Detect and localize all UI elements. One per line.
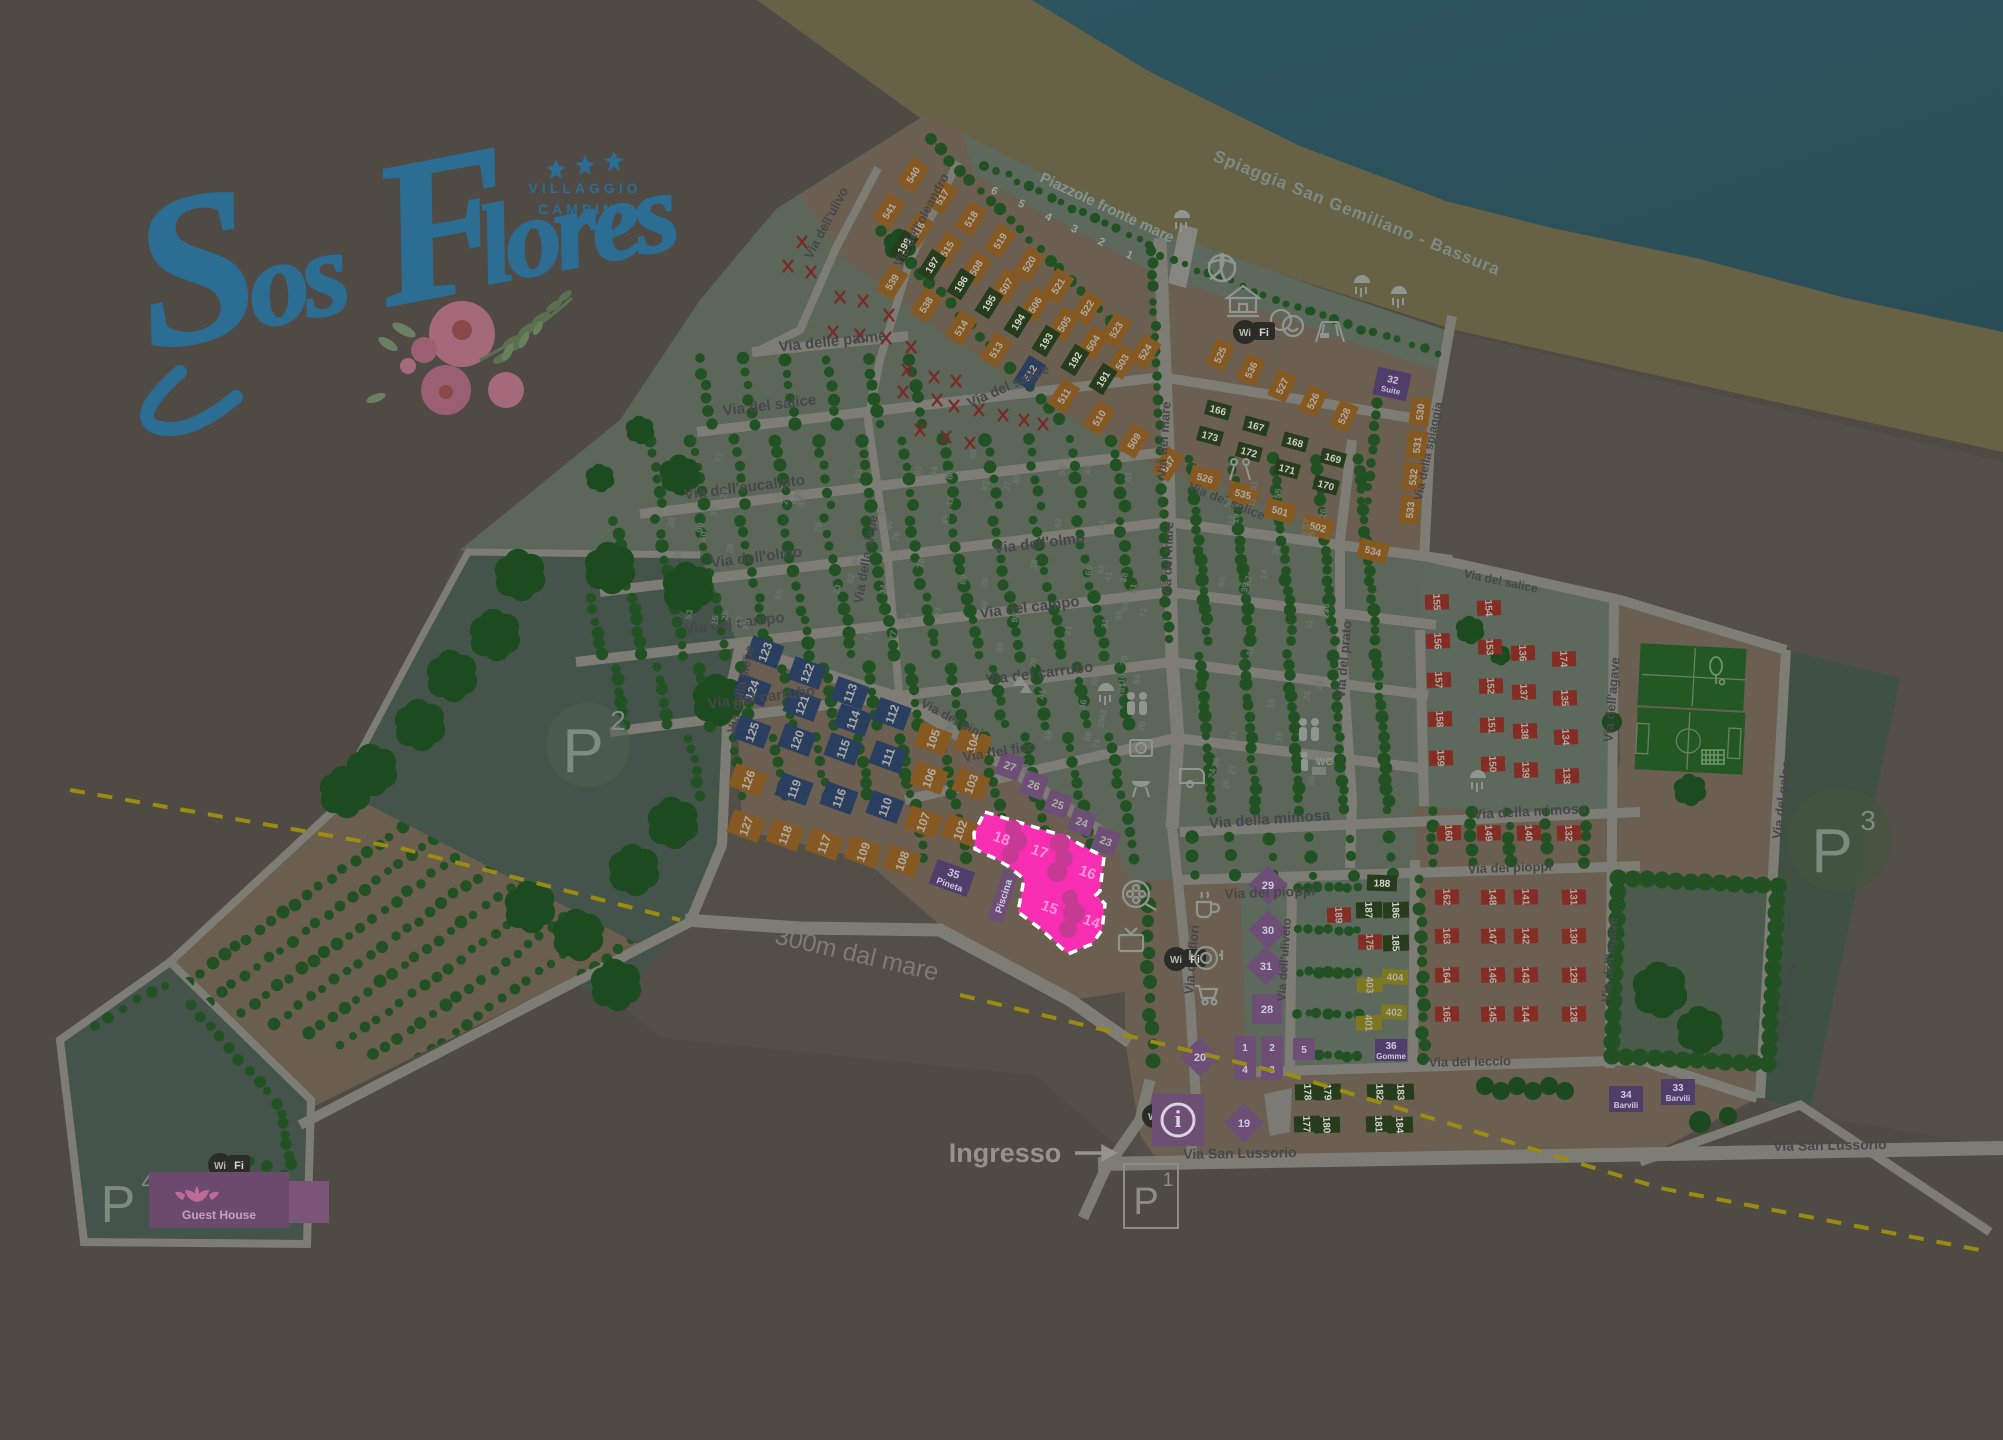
svg-text:79: 79 xyxy=(812,522,824,534)
svg-text:31: 31 xyxy=(1062,625,1074,637)
svg-text:Via San Lussorio: Via San Lussorio xyxy=(1773,1136,1887,1154)
svg-text:25: 25 xyxy=(719,610,731,622)
svg-text:27: 27 xyxy=(1001,480,1013,492)
svg-text:31: 31 xyxy=(1099,618,1111,630)
svg-text:1: 1 xyxy=(1242,1043,1248,1054)
svg-text:33: 33 xyxy=(1672,1083,1684,1094)
svg-text:160: 160 xyxy=(1442,825,1454,842)
svg-text:71: 71 xyxy=(1137,607,1149,619)
svg-text:146: 146 xyxy=(1486,967,1498,984)
svg-text:53: 53 xyxy=(683,609,695,621)
svg-text:Ingresso: Ingresso xyxy=(949,1138,1062,1168)
svg-text:i: i xyxy=(1175,1107,1182,1133)
svg-text:188: 188 xyxy=(1373,878,1390,890)
svg-text:530: 530 xyxy=(1415,403,1428,421)
svg-text:143: 143 xyxy=(1519,967,1531,984)
svg-text:69: 69 xyxy=(1083,565,1095,577)
svg-text:38: 38 xyxy=(1028,559,1040,571)
svg-text:14: 14 xyxy=(1258,569,1270,581)
svg-text:85: 85 xyxy=(967,448,979,460)
svg-text:133: 133 xyxy=(1560,768,1572,785)
svg-text:80: 80 xyxy=(957,574,969,586)
svg-text:180: 180 xyxy=(1320,1117,1332,1134)
svg-text:Via del leccio: Via del leccio xyxy=(1429,1053,1511,1069)
svg-text:533: 533 xyxy=(1405,501,1418,519)
svg-text:Wi: Wi xyxy=(1170,955,1182,966)
svg-text:156: 156 xyxy=(1431,633,1443,650)
svg-text:41: 41 xyxy=(1036,689,1048,701)
svg-text:151: 151 xyxy=(1485,717,1497,734)
svg-text:165: 165 xyxy=(1440,1006,1452,1023)
svg-text:59: 59 xyxy=(978,600,990,612)
svg-text:2: 2 xyxy=(610,705,626,736)
svg-text:P: P xyxy=(1133,1181,1158,1223)
svg-text:Barvili: Barvili xyxy=(1666,1094,1690,1103)
svg-text:136: 136 xyxy=(1516,645,1528,662)
svg-text:27: 27 xyxy=(1320,608,1332,620)
svg-text:129: 129 xyxy=(1567,967,1579,984)
svg-text:71: 71 xyxy=(862,631,874,643)
svg-text:76: 76 xyxy=(1089,676,1101,688)
svg-text:93: 93 xyxy=(932,607,944,619)
svg-text:70: 70 xyxy=(1118,655,1130,667)
svg-text:39: 39 xyxy=(708,506,720,518)
svg-text:162: 162 xyxy=(1440,889,1452,906)
svg-text:4: 4 xyxy=(1242,1065,1248,1076)
svg-text:402: 402 xyxy=(1385,1007,1402,1019)
svg-text:130: 130 xyxy=(1567,928,1579,945)
svg-text:163: 163 xyxy=(1440,928,1452,945)
svg-text:5: 5 xyxy=(1301,1045,1307,1056)
svg-text:Guest House: Guest House xyxy=(182,1208,256,1222)
svg-text:182: 182 xyxy=(1373,1084,1385,1101)
svg-text:158: 158 xyxy=(1433,711,1445,728)
svg-text:P: P xyxy=(1811,817,1852,886)
svg-text:152: 152 xyxy=(1484,678,1496,695)
svg-text:34: 34 xyxy=(1620,1090,1632,1101)
svg-text:Via San Lussorio: Via San Lussorio xyxy=(1183,1144,1297,1162)
svg-text:128: 128 xyxy=(1567,1006,1579,1023)
svg-text:31: 31 xyxy=(1248,480,1260,492)
svg-text:39: 39 xyxy=(1239,582,1251,594)
svg-text:21: 21 xyxy=(1226,764,1238,776)
svg-text:P: P xyxy=(562,717,603,786)
svg-text:35: 35 xyxy=(1095,718,1107,730)
svg-text:31: 31 xyxy=(1303,619,1315,631)
svg-text:84: 84 xyxy=(928,466,940,478)
svg-text:54: 54 xyxy=(1131,674,1143,686)
svg-text:11: 11 xyxy=(1246,497,1258,508)
svg-text:23: 23 xyxy=(831,584,843,596)
svg-text:142: 142 xyxy=(1519,928,1531,945)
svg-text:81: 81 xyxy=(1122,471,1134,483)
svg-text:2: 2 xyxy=(1269,1043,1275,1054)
svg-text:19: 19 xyxy=(1238,1118,1250,1130)
svg-text:Barvili: Barvili xyxy=(1614,1101,1638,1110)
svg-text:30: 30 xyxy=(1262,925,1274,937)
svg-text:CAMPING: CAMPING xyxy=(538,201,632,217)
svg-text:66: 66 xyxy=(1019,763,1031,775)
svg-text:55: 55 xyxy=(1056,465,1068,477)
svg-text:28: 28 xyxy=(724,543,736,555)
svg-text:Via dei pioppi: Via dei pioppi xyxy=(1224,882,1315,901)
svg-text:Fi: Fi xyxy=(1259,327,1269,339)
svg-text:36: 36 xyxy=(1385,1041,1397,1052)
svg-text:148: 148 xyxy=(1486,889,1498,906)
svg-text:140: 140 xyxy=(1522,825,1534,842)
svg-text:89: 89 xyxy=(994,642,1006,654)
svg-text:98: 98 xyxy=(1009,612,1021,624)
svg-text:26: 26 xyxy=(1301,690,1313,702)
svg-text:82: 82 xyxy=(845,573,857,585)
svg-text:164: 164 xyxy=(1440,967,1452,984)
svg-text:VILLAGGIO: VILLAGGIO xyxy=(529,180,642,196)
svg-text:404: 404 xyxy=(1386,972,1403,984)
svg-text:52: 52 xyxy=(1222,497,1234,509)
svg-text:54: 54 xyxy=(1119,601,1131,613)
svg-text:83: 83 xyxy=(979,480,991,492)
svg-text:29: 29 xyxy=(718,488,730,500)
svg-text:39: 39 xyxy=(1042,730,1054,742)
svg-text:181: 181 xyxy=(1372,1116,1384,1133)
svg-text:21: 21 xyxy=(1227,730,1239,742)
svg-text:154: 154 xyxy=(1482,600,1494,617)
svg-text:139: 139 xyxy=(1519,762,1531,779)
svg-text:Fi: Fi xyxy=(234,1160,244,1172)
svg-text:39: 39 xyxy=(1210,757,1222,769)
svg-text:92: 92 xyxy=(1095,564,1107,576)
svg-text:135: 135 xyxy=(1558,690,1570,707)
svg-text:38: 38 xyxy=(1118,572,1130,584)
svg-text:55: 55 xyxy=(1272,488,1284,500)
svg-text:46: 46 xyxy=(1077,699,1089,711)
svg-text:37: 37 xyxy=(1226,515,1238,527)
svg-text:37: 37 xyxy=(1299,526,1311,538)
svg-text:20: 20 xyxy=(1194,1052,1206,1064)
svg-text:71: 71 xyxy=(1090,738,1102,750)
svg-text:55: 55 xyxy=(773,589,785,601)
svg-text:53: 53 xyxy=(790,494,802,506)
svg-text:141: 141 xyxy=(1519,889,1531,906)
svg-text:403: 403 xyxy=(1363,977,1375,994)
svg-text:155: 155 xyxy=(1430,594,1442,611)
svg-text:73: 73 xyxy=(673,549,685,561)
svg-text:183: 183 xyxy=(1394,1084,1406,1101)
svg-text:149: 149 xyxy=(1482,825,1494,842)
svg-text:401: 401 xyxy=(1362,1015,1374,1032)
svg-text:76: 76 xyxy=(890,531,902,543)
svg-text:WC: WC xyxy=(1316,757,1333,768)
svg-text:153: 153 xyxy=(1483,639,1495,656)
svg-text:185: 185 xyxy=(1389,935,1401,952)
svg-text:82: 82 xyxy=(912,465,924,477)
svg-text:Via dei pioppi: Via dei pioppi xyxy=(1467,859,1552,877)
svg-text:138: 138 xyxy=(1518,723,1530,740)
svg-text:77: 77 xyxy=(887,630,899,642)
svg-text:26: 26 xyxy=(1317,508,1329,520)
svg-text:36: 36 xyxy=(944,469,956,481)
svg-text:186: 186 xyxy=(1389,902,1401,919)
svg-text:84: 84 xyxy=(849,554,861,566)
svg-text:23: 23 xyxy=(902,613,914,625)
svg-text:60: 60 xyxy=(697,531,709,543)
svg-text:137: 137 xyxy=(1517,684,1529,701)
svg-text:189: 189 xyxy=(1332,907,1344,924)
svg-text:177: 177 xyxy=(1300,1116,1312,1133)
svg-text:33: 33 xyxy=(1313,680,1325,692)
svg-text:85: 85 xyxy=(740,619,752,631)
svg-text:145: 145 xyxy=(1486,1006,1498,1023)
svg-text:25: 25 xyxy=(779,494,791,506)
svg-text:Via del mare: Via del mare xyxy=(1159,521,1177,598)
svg-text:76: 76 xyxy=(915,558,927,570)
svg-text:131: 131 xyxy=(1567,889,1579,906)
svg-text:144: 144 xyxy=(1519,1006,1531,1023)
svg-text:174: 174 xyxy=(1557,651,1569,668)
svg-text:175: 175 xyxy=(1363,934,1375,951)
svg-text:70: 70 xyxy=(1136,721,1148,733)
svg-text:24: 24 xyxy=(1206,768,1218,780)
svg-text:Wi: Wi xyxy=(1239,328,1251,339)
svg-text:147: 147 xyxy=(1486,928,1498,945)
svg-text:157: 157 xyxy=(1432,672,1444,689)
svg-text:132: 132 xyxy=(1562,825,1574,842)
svg-text:34: 34 xyxy=(1081,464,1093,476)
svg-text:150: 150 xyxy=(1486,756,1498,773)
svg-text:77: 77 xyxy=(713,452,725,464)
svg-text:34: 34 xyxy=(877,584,889,596)
svg-text:3: 3 xyxy=(1860,805,1876,836)
svg-text:187: 187 xyxy=(1362,902,1374,919)
svg-text:Wi: Wi xyxy=(214,1161,226,1172)
svg-text:21: 21 xyxy=(852,468,864,480)
svg-text:Gomme: Gomme xyxy=(1376,1052,1406,1061)
svg-text:31: 31 xyxy=(1260,961,1272,973)
svg-text:45: 45 xyxy=(940,514,952,526)
svg-text:42: 42 xyxy=(1052,518,1064,530)
svg-text:15: 15 xyxy=(1265,698,1277,710)
svg-text:15: 15 xyxy=(1273,731,1285,743)
svg-text:184: 184 xyxy=(1393,1117,1405,1134)
svg-text:P: P xyxy=(101,1176,136,1234)
svg-text:42: 42 xyxy=(1244,646,1256,658)
svg-text:26: 26 xyxy=(1270,545,1282,557)
svg-text:39: 39 xyxy=(979,577,991,589)
svg-text:159: 159 xyxy=(1434,750,1446,767)
svg-text:91: 91 xyxy=(875,506,887,518)
svg-text:134: 134 xyxy=(1559,729,1571,746)
svg-text:1: 1 xyxy=(1163,1170,1174,1191)
svg-text:28: 28 xyxy=(1261,1004,1273,1016)
svg-text:30: 30 xyxy=(665,517,677,529)
svg-text:42: 42 xyxy=(944,496,956,508)
svg-text:29: 29 xyxy=(1027,657,1039,669)
svg-text:81: 81 xyxy=(1116,682,1128,694)
svg-text:35: 35 xyxy=(1220,779,1232,791)
svg-text:61: 61 xyxy=(1127,583,1139,595)
svg-text:34: 34 xyxy=(944,720,956,732)
svg-text:178: 178 xyxy=(1301,1084,1313,1101)
svg-text:56: 56 xyxy=(1216,576,1228,588)
svg-text:46: 46 xyxy=(883,520,895,532)
svg-text:21: 21 xyxy=(1095,519,1107,531)
svg-text:26: 26 xyxy=(1305,775,1317,787)
